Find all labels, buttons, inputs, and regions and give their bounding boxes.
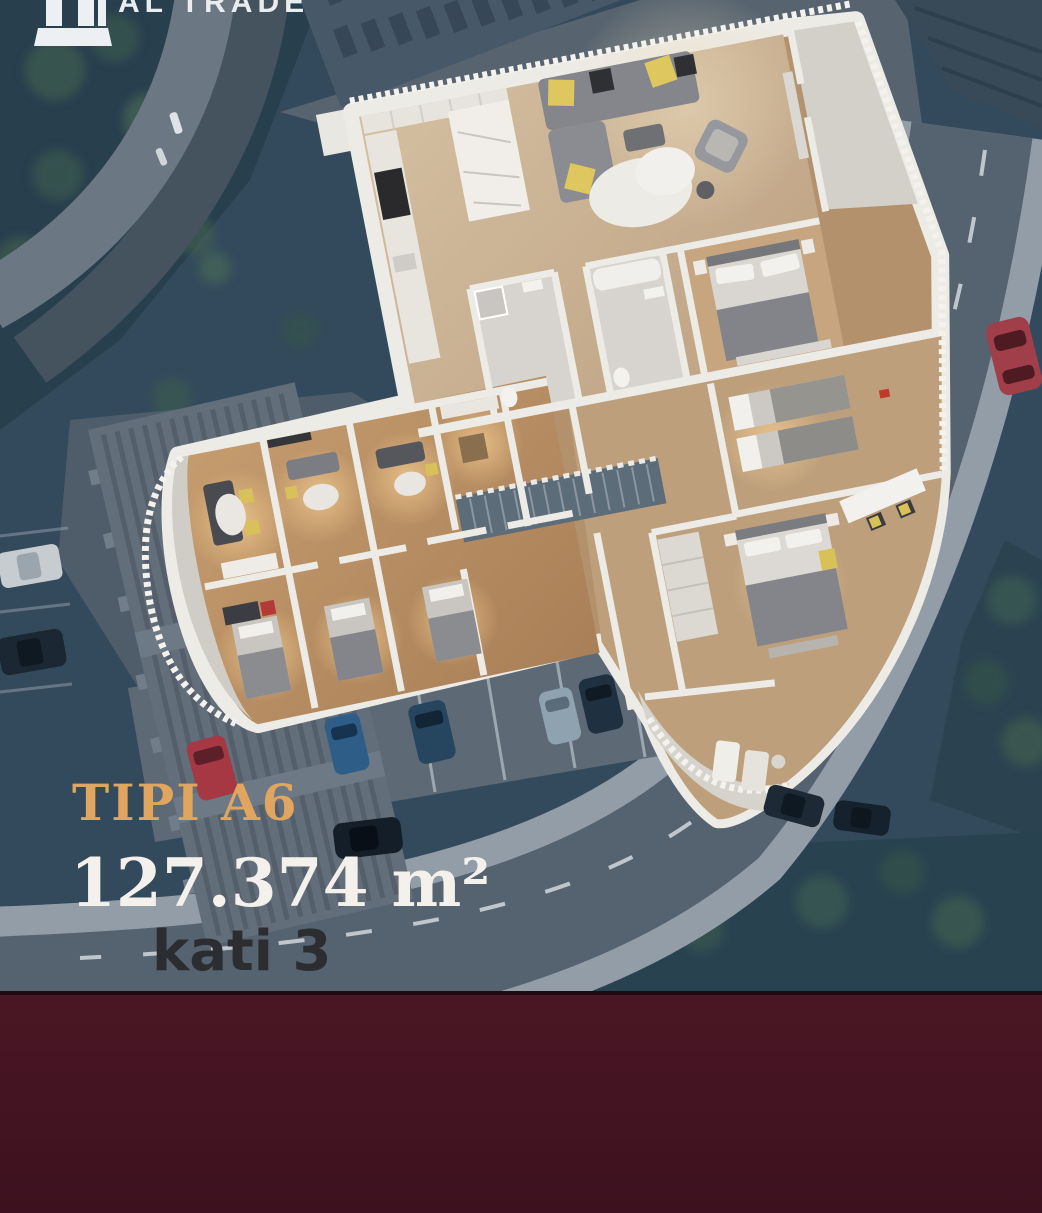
promo-frame: AL TRADE TIPI A6 127.374 m² kati 3 bbox=[0, 0, 1042, 1213]
unit-type-label: TIPI A6 bbox=[72, 773, 299, 832]
unit-area-label: 127.374 m² bbox=[70, 844, 490, 922]
unit-floor-label: kati 3 bbox=[152, 919, 331, 984]
band-top-edge bbox=[0, 991, 1042, 995]
brand-name: AL TRADE bbox=[118, 0, 309, 19]
red-cabinet bbox=[260, 600, 276, 616]
bottom-band bbox=[0, 995, 1042, 1213]
scene-canvas: AL TRADE TIPI A6 127.374 m² kati 3 bbox=[0, 0, 1042, 1213]
